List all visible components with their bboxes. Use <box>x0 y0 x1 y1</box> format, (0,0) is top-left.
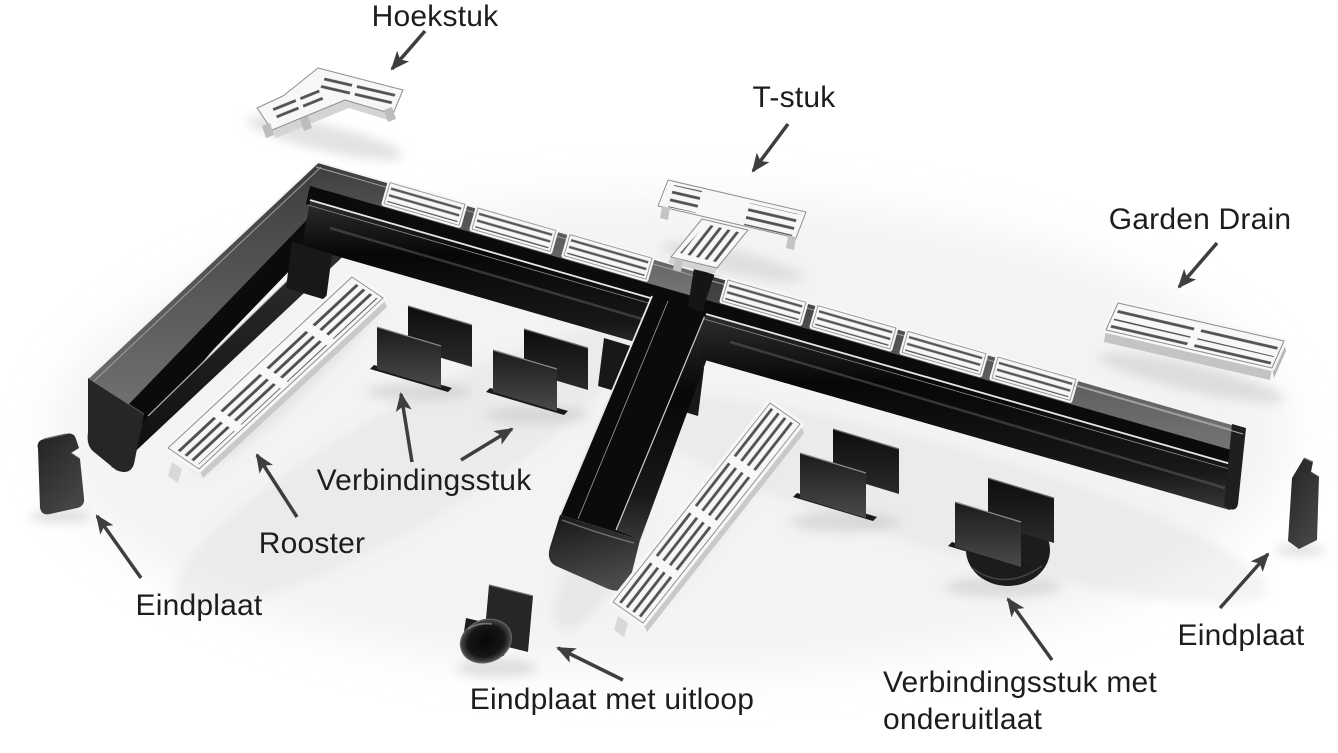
label-eindplaat-right: Eindplaat <box>1178 619 1305 653</box>
label-verbindingsstuk-met-onderuitlaat: Verbindingsstuk met onderuitlaat <box>883 664 1157 738</box>
label-eindplaat-left: Eindplaat <box>136 589 263 623</box>
label-verbindingsstuk: Verbindingsstuk <box>317 464 532 498</box>
garden-drain-parts-diagram: Hoekstuk T-stuk Garden Drain Verbindings… <box>0 0 1338 753</box>
arrow-t-stuk <box>753 124 788 171</box>
label-garden-drain: Garden Drain <box>1109 203 1292 237</box>
label-line-1: Verbindingsstuk met <box>883 664 1157 701</box>
arrow-garden-drain <box>1179 243 1217 287</box>
diagram-illustration <box>0 0 1338 753</box>
label-hoekstuk: Hoekstuk <box>372 0 499 34</box>
end-plate-right <box>1288 458 1319 549</box>
label-rooster: Rooster <box>259 527 365 561</box>
label-eindplaat-met-uitloop: Eindplaat met uitloop <box>470 683 754 717</box>
end-plate-left <box>38 434 85 515</box>
arrow-hoekstuk <box>392 31 425 69</box>
label-line-2: onderuitlaat <box>883 701 1157 738</box>
label-t-stuk: T-stuk <box>753 81 836 115</box>
